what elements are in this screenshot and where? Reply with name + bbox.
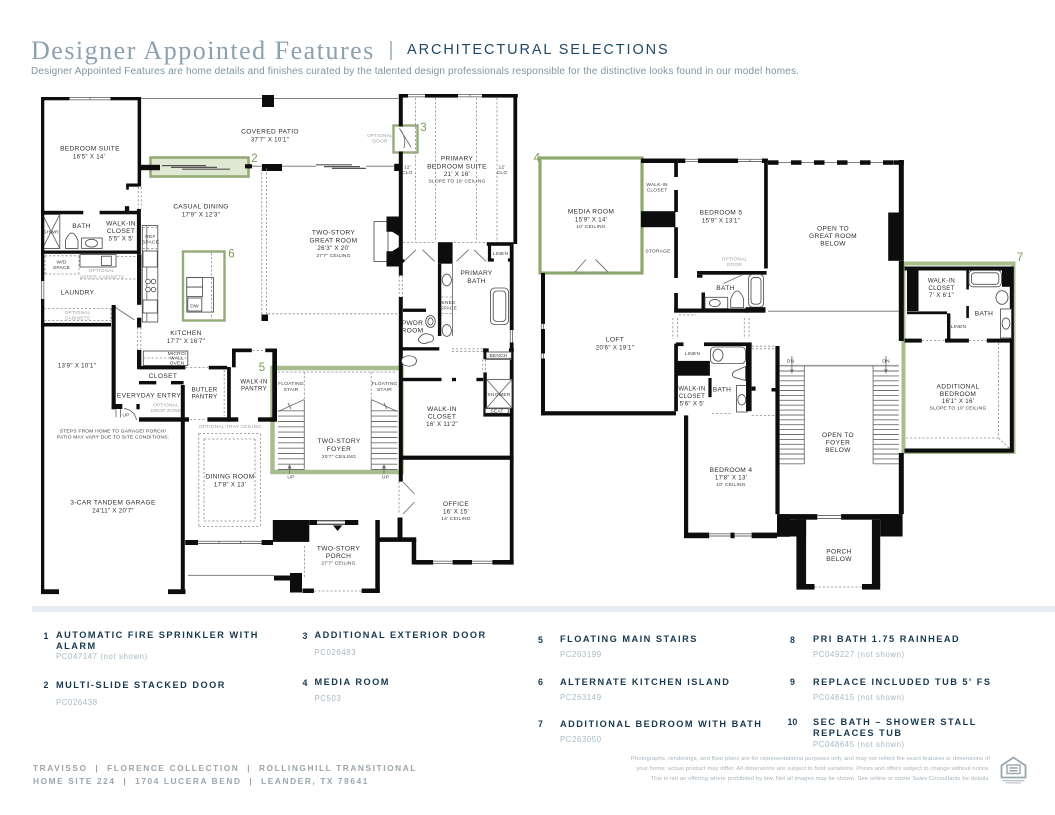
svg-text:FLOATING: FLOATING: [278, 381, 304, 387]
svg-text:CLG: CLG: [497, 170, 508, 176]
svg-text:SHWR: SHWR: [43, 230, 59, 236]
svg-text:ROOM: ROOM: [402, 328, 424, 335]
svg-text:OPTIONAL: OPTIONAL: [65, 310, 91, 316]
svg-text:DW: DW: [190, 304, 199, 310]
svg-text:SLOPE TO 10' CEILING: SLOPE TO 10' CEILING: [930, 406, 987, 412]
svg-text:LINEN: LINEN: [493, 251, 509, 257]
svg-text:SPACE: SPACE: [53, 265, 71, 271]
svg-text:5'5" X 5': 5'5" X 5': [109, 236, 134, 243]
svg-text:10' CEILING: 10' CEILING: [576, 224, 606, 230]
svg-text:SLOPE TO 19' CEILING: SLOPE TO 19' CEILING: [429, 179, 486, 185]
svg-text:DROP ZONE: DROP ZONE: [151, 408, 181, 414]
svg-text:PRIMARY: PRIMARY: [441, 156, 474, 163]
svg-text:LINEN: LINEN: [951, 324, 967, 330]
svg-text:2: 2: [251, 153, 257, 165]
svg-text:OPTIONAL: OPTIONAL: [153, 403, 179, 409]
svg-text:FLOATING: FLOATING: [372, 381, 398, 387]
svg-text:14' CEILING: 14' CEILING: [441, 516, 471, 522]
svg-text:PANTRY: PANTRY: [241, 386, 267, 393]
svg-text:DINING ROOM: DINING ROOM: [205, 474, 254, 481]
svg-text:PORCH: PORCH: [326, 553, 352, 560]
svg-text:16'1" X 16': 16'1" X 16': [942, 398, 974, 405]
svg-text:REF: REF: [145, 234, 155, 240]
svg-text:37'7" X 10'1": 37'7" X 10'1": [251, 137, 289, 144]
svg-text:KITCHEN: KITCHEN: [170, 330, 201, 337]
svg-text:BEDROOM 4: BEDROOM 4: [710, 467, 753, 474]
svg-text:12': 12': [499, 165, 506, 171]
svg-text:27'7" CEILING: 27'7" CEILING: [321, 561, 355, 567]
svg-text:CABINETS: CABINETS: [65, 315, 91, 321]
svg-text:BUTLER: BUTLER: [192, 387, 218, 394]
svg-text:6: 6: [228, 249, 234, 261]
svg-text:CLOSET: CLOSET: [107, 228, 135, 235]
svg-text:7' X 6'1": 7' X 6'1": [929, 292, 954, 299]
svg-text:BENCH: BENCH: [489, 353, 507, 359]
svg-text:SPACE: SPACE: [142, 240, 160, 246]
svg-text:17'9" X 12'3": 17'9" X 12'3": [182, 212, 220, 219]
svg-text:24'11" X 20'7": 24'11" X 20'7": [92, 508, 134, 515]
svg-text:BEDROOM: BEDROOM: [940, 391, 977, 398]
svg-text:CASUAL DINING: CASUAL DINING: [173, 204, 229, 211]
svg-text:BEDROOM SUITE: BEDROOM SUITE: [60, 146, 120, 153]
svg-text:TWO-STORY: TWO-STORY: [317, 438, 360, 445]
svg-text:7: 7: [1017, 252, 1023, 264]
svg-text:STAIR: STAIR: [283, 387, 298, 393]
svg-text:W/D: W/D: [56, 260, 66, 266]
svg-text:CLOSET: CLOSET: [428, 414, 456, 421]
svg-text:PWDR: PWDR: [402, 320, 424, 327]
svg-text:EVERYDAY ENTRY: EVERYDAY ENTRY: [117, 393, 181, 400]
svg-text:PORCH: PORCH: [826, 549, 852, 556]
svg-text:WALK-IN: WALK-IN: [678, 386, 705, 393]
svg-text:CLOSET: CLOSET: [647, 188, 668, 194]
svg-text:OPEN TO: OPEN TO: [822, 432, 854, 439]
svg-text:OVEN: OVEN: [170, 360, 185, 366]
svg-text:15'9" X 13'1": 15'9" X 13'1": [702, 218, 740, 225]
svg-text:SPACE: SPACE: [440, 306, 458, 312]
svg-text:BATH: BATH: [467, 278, 486, 285]
svg-text:GREAT ROOM: GREAT ROOM: [809, 233, 857, 240]
svg-text:16' X 11'2": 16' X 11'2": [426, 421, 458, 428]
svg-text:26'3" X 20': 26'3" X 20': [317, 245, 349, 252]
svg-text:OPTIONAL: OPTIONAL: [722, 257, 748, 263]
svg-text:KNEE: KNEE: [441, 300, 456, 306]
svg-text:LINEN: LINEN: [685, 351, 701, 357]
svg-text:WALK-IN: WALK-IN: [106, 221, 136, 228]
svg-text:21' X 16': 21' X 16': [444, 171, 470, 178]
svg-text:GREAT ROOM: GREAT ROOM: [310, 238, 358, 245]
svg-text:17'7" X 16'7": 17'7" X 16'7": [167, 338, 205, 345]
svg-text:OPEN TO: OPEN TO: [817, 226, 849, 233]
svg-text:DOOR: DOOR: [727, 262, 743, 268]
svg-text:17'8" X 13': 17'8" X 13': [715, 475, 747, 482]
svg-text:BEDROOM 5: BEDROOM 5: [700, 210, 743, 217]
svg-text:5: 5: [259, 362, 265, 374]
svg-text:WALK-IN: WALK-IN: [240, 379, 267, 386]
svg-text:STEPS FROM HOME TO GARAGE/ POR: STEPS FROM HOME TO GARAGE/ PORCH/: [60, 429, 167, 435]
svg-text:CLOSET: CLOSET: [928, 285, 954, 292]
svg-text:UP: UP: [122, 413, 129, 419]
svg-text:BELOW: BELOW: [825, 447, 851, 454]
svg-text:FOYER: FOYER: [826, 440, 850, 447]
svg-text:STAIR: STAIR: [377, 387, 392, 393]
svg-text:SHOWER: SHOWER: [487, 392, 510, 398]
svg-text:PATIO MAY VARY DUE TO SITE CON: PATIO MAY VARY DUE TO SITE CONDITIONS.: [57, 435, 170, 441]
svg-text:13'9" X 10'1": 13'9" X 10'1": [58, 363, 96, 370]
svg-text:10' CEILING: 10' CEILING: [716, 482, 746, 488]
svg-text:UP: UP: [382, 475, 389, 481]
svg-text:12': 12': [404, 165, 411, 171]
svg-text:BEDROOM SUITE: BEDROOM SUITE: [427, 164, 487, 171]
svg-text:20'6" X 19'1": 20'6" X 19'1": [596, 345, 634, 352]
svg-text:MEDIA ROOM: MEDIA ROOM: [568, 209, 614, 216]
svg-text:LOFT: LOFT: [606, 337, 624, 344]
svg-text:20'7" CEILING: 20'7" CEILING: [322, 454, 356, 460]
svg-text:WALK-IN: WALK-IN: [646, 182, 668, 188]
svg-text:17'8" X 13': 17'8" X 13': [214, 482, 246, 489]
svg-text:DN: DN: [787, 359, 795, 365]
svg-text:5'6" X 5': 5'6" X 5': [680, 401, 705, 408]
svg-text:UP: UP: [287, 475, 294, 481]
svg-text:WALK-IN: WALK-IN: [928, 278, 955, 285]
svg-text:TWO-STORY: TWO-STORY: [312, 230, 355, 237]
svg-text:PRIMARY: PRIMARY: [460, 270, 493, 277]
svg-text:UPPER CABINETS: UPPER CABINETS: [80, 274, 125, 280]
svg-text:4: 4: [534, 153, 541, 165]
svg-text:15'9" X 14': 15'9" X 14': [575, 217, 607, 224]
svg-text:BATH: BATH: [975, 311, 994, 318]
svg-text:BELOW: BELOW: [820, 241, 846, 248]
svg-text:WALK-IN: WALK-IN: [427, 406, 457, 413]
svg-text:PANTRY: PANTRY: [192, 394, 218, 401]
svg-text:OPTIONAL TRAY CEILING: OPTIONAL TRAY CEILING: [199, 424, 261, 430]
svg-text:TWO-STORY: TWO-STORY: [317, 546, 360, 553]
svg-text:OFFICE: OFFICE: [443, 501, 470, 508]
svg-text:BATH: BATH: [716, 285, 735, 292]
svg-text:CLOSET: CLOSET: [679, 393, 705, 400]
svg-text:DOOR: DOOR: [372, 139, 388, 145]
svg-text:FOYER: FOYER: [327, 446, 351, 453]
svg-text:3-CAR TANDEM GARAGE: 3-CAR TANDEM GARAGE: [70, 500, 156, 507]
svg-text:BELOW: BELOW: [826, 556, 852, 563]
svg-text:COVERED PATIO: COVERED PATIO: [241, 129, 299, 136]
svg-text:CLG: CLG: [402, 170, 413, 176]
svg-text:LAUNDRY: LAUNDRY: [61, 290, 95, 297]
svg-text:OPTIONAL: OPTIONAL: [367, 133, 393, 139]
svg-text:27'7" CEILING: 27'7" CEILING: [316, 253, 350, 259]
svg-text:ADDITIONAL: ADDITIONAL: [936, 384, 979, 391]
svg-text:BATH: BATH: [713, 387, 732, 394]
svg-text:3: 3: [420, 122, 426, 134]
svg-text:CLOSET: CLOSET: [149, 373, 177, 380]
svg-text:BATH: BATH: [72, 223, 91, 230]
svg-text:STORAGE: STORAGE: [645, 249, 671, 255]
svg-text:16' X 15': 16' X 15': [443, 509, 469, 516]
svg-text:16'5" X 14': 16'5" X 14': [73, 154, 105, 161]
svg-text:OPTIONAL: OPTIONAL: [89, 268, 115, 274]
